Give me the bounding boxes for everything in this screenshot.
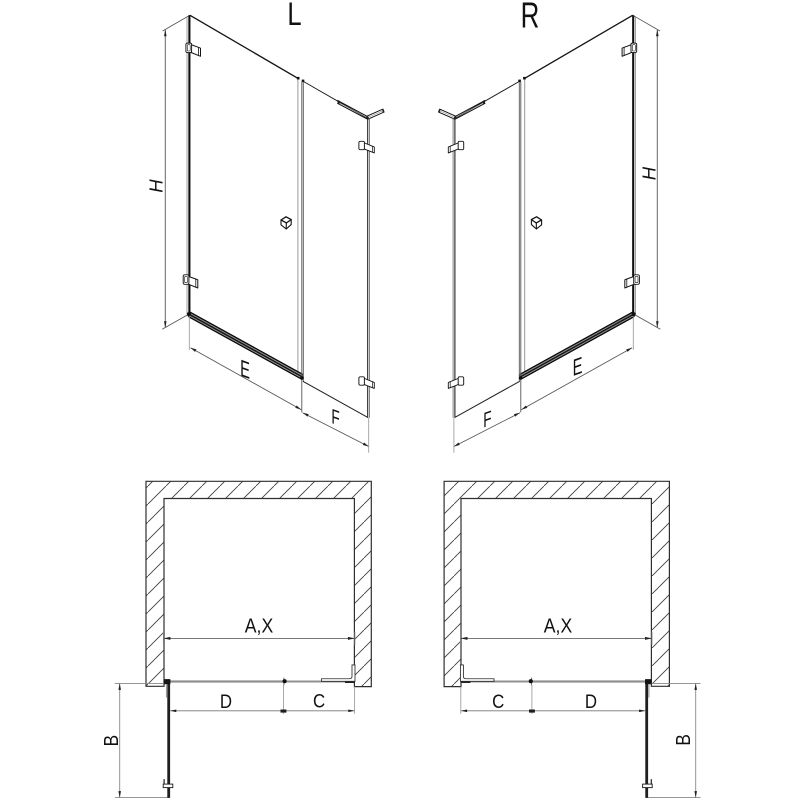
svg-text:C: C xyxy=(492,690,504,713)
svg-text:D: D xyxy=(220,690,232,713)
svg-text:E: E xyxy=(573,353,583,382)
svg-text:R: R xyxy=(521,0,540,36)
svg-text:C: C xyxy=(313,689,325,712)
svg-text:D: D xyxy=(585,690,597,713)
svg-text:E: E xyxy=(240,356,250,385)
svg-text:L: L xyxy=(287,0,301,33)
svg-text:B: B xyxy=(672,734,695,745)
svg-text:H: H xyxy=(146,179,167,193)
svg-text:A,X: A,X xyxy=(544,615,573,638)
svg-text:F: F xyxy=(483,406,491,432)
svg-text:F: F xyxy=(331,404,339,430)
svg-text:B: B xyxy=(100,735,123,746)
svg-text:A,X: A,X xyxy=(245,615,274,638)
svg-text:H: H xyxy=(638,166,659,180)
